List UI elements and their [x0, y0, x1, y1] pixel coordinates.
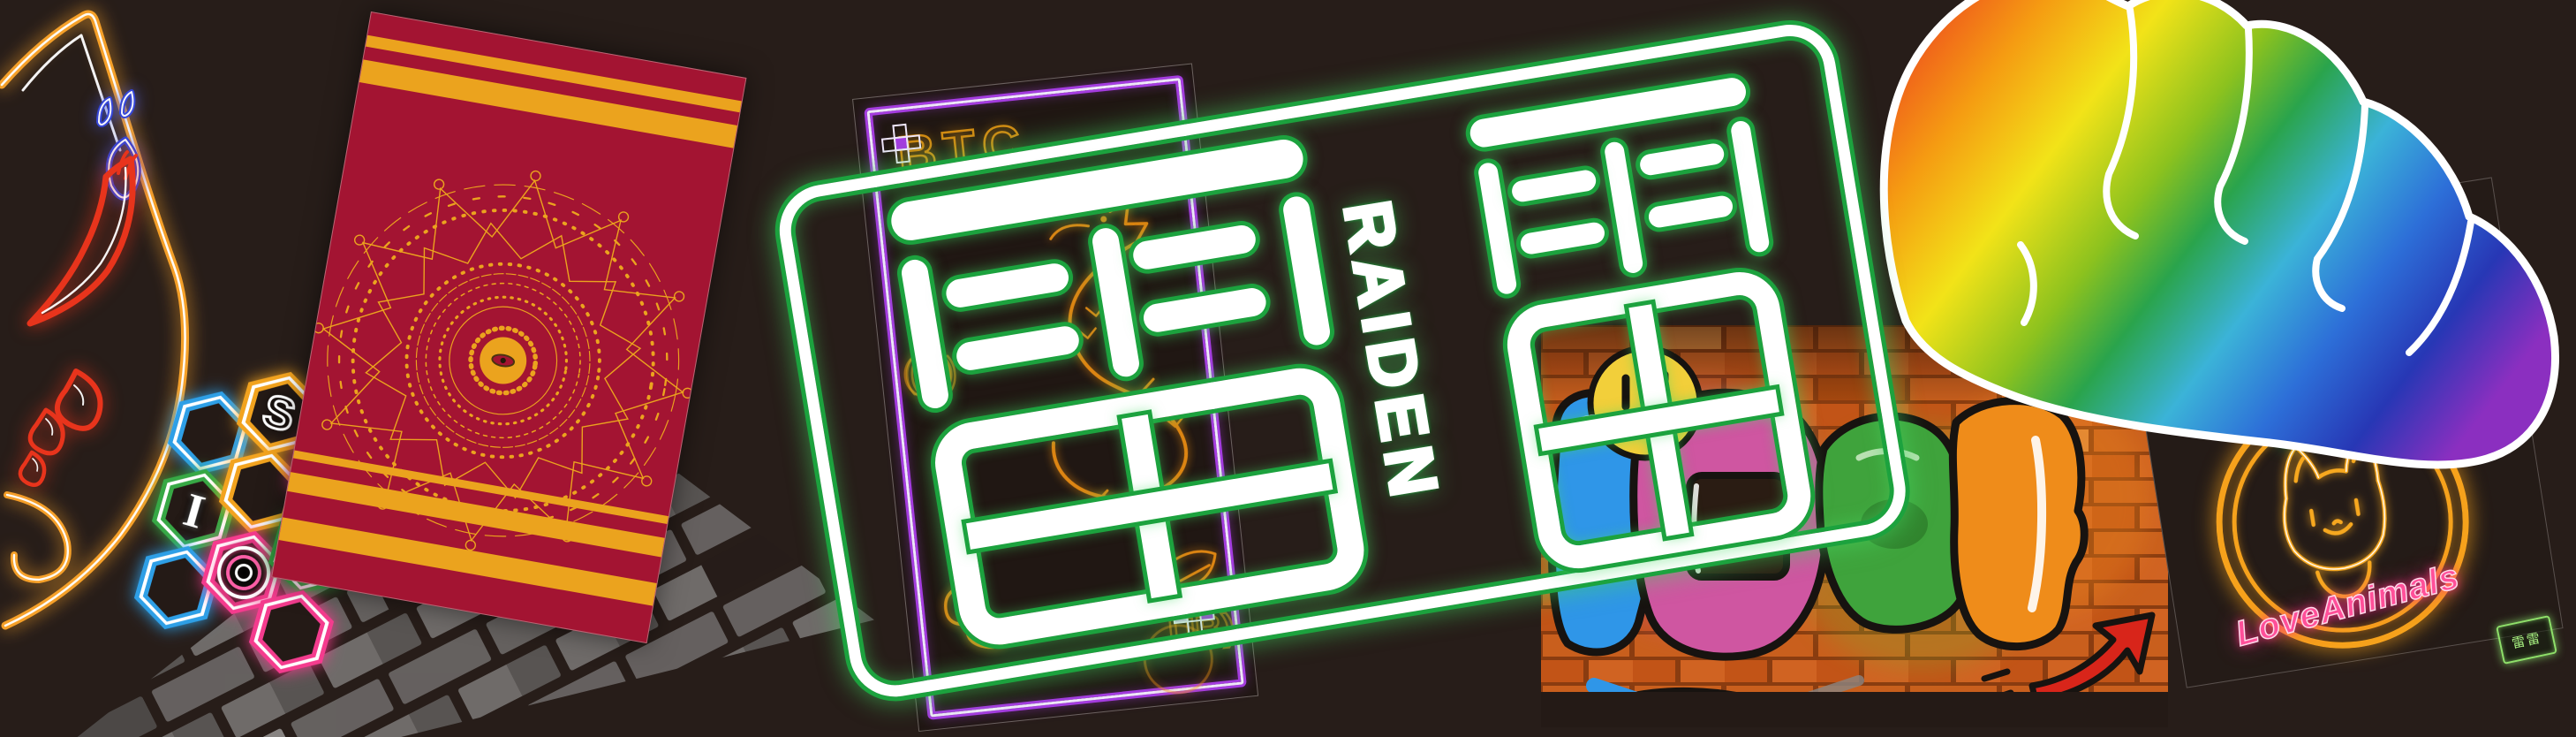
fox-tongue-flame [20, 152, 136, 485]
kanji-thunder-right: 雷 [1466, 75, 1820, 574]
rainbow-fist-graphic [1855, 0, 2576, 517]
nft-collection-banner: S I O [0, 0, 2576, 737]
kanji-thunder-left: 雷 [885, 136, 1377, 652]
hexagon-letter-o: O [219, 520, 220, 521]
